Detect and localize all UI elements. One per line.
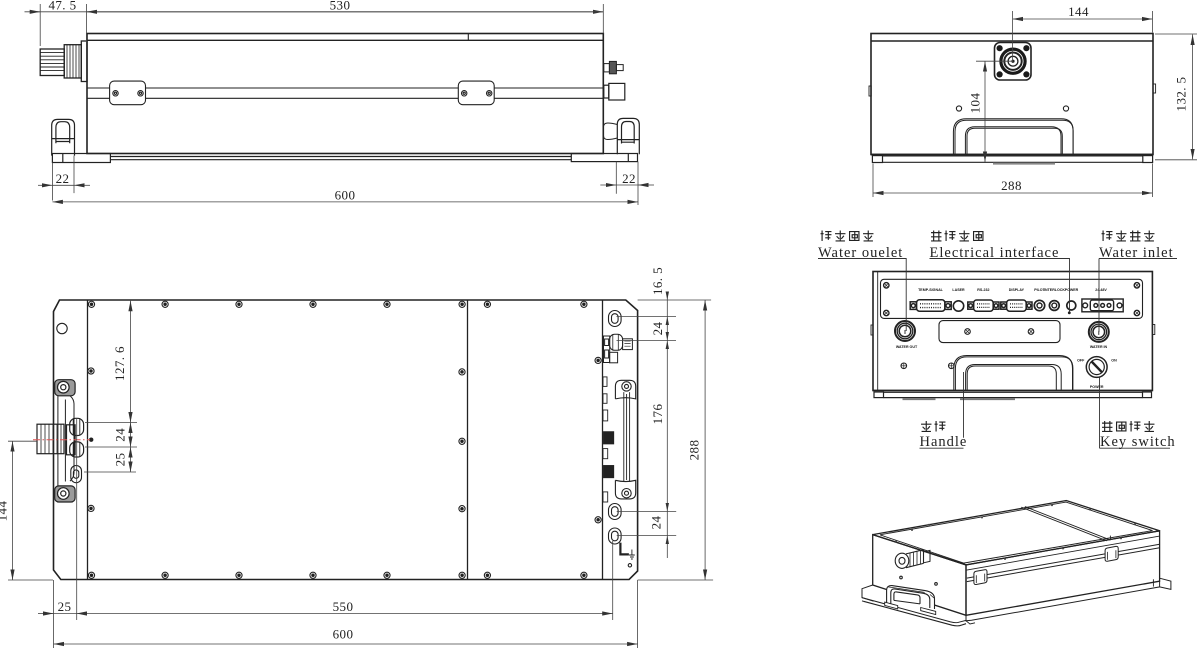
svg-text:Water inlet: Water inlet	[1099, 245, 1174, 261]
svg-text:DISPLAY: DISPLAY	[1009, 288, 1025, 292]
svg-text:24: 24	[113, 428, 128, 442]
svg-text:288: 288	[1001, 178, 1022, 193]
svg-text:Key switch: Key switch	[1100, 434, 1176, 450]
svg-text:22: 22	[622, 171, 636, 186]
svg-text:16. 5: 16. 5	[650, 267, 665, 295]
svg-text:ON: ON	[1111, 358, 1117, 362]
svg-text:24: 24	[650, 322, 665, 336]
svg-text:WATER IN: WATER IN	[1090, 345, 1108, 349]
svg-text:104: 104	[968, 93, 983, 114]
svg-text:600: 600	[335, 188, 356, 203]
svg-text:24-48V: 24-48V	[1095, 288, 1107, 292]
svg-text:22: 22	[56, 171, 70, 186]
svg-text:127. 6: 127. 6	[112, 346, 127, 381]
svg-text:POWER: POWER	[1065, 288, 1079, 292]
svg-text:Electrical interface: Electrical interface	[930, 245, 1060, 261]
svg-text:WATER OUT: WATER OUT	[896, 345, 918, 349]
svg-text:176: 176	[650, 404, 665, 425]
svg-text:550: 550	[333, 599, 354, 614]
svg-text:144: 144	[0, 501, 10, 522]
svg-text:RS-232: RS-232	[977, 288, 989, 292]
svg-text:POWER: POWER	[1090, 385, 1104, 389]
svg-text:Handle: Handle	[920, 434, 968, 450]
svg-text:144: 144	[1068, 4, 1089, 19]
svg-text:132. 5: 132. 5	[1174, 77, 1189, 112]
svg-text:47. 5: 47. 5	[49, 0, 77, 13]
svg-text:25: 25	[58, 599, 72, 614]
svg-text:25: 25	[113, 453, 128, 467]
svg-text:600: 600	[333, 627, 354, 642]
svg-text:Water ouelet: Water ouelet	[818, 245, 903, 261]
svg-text:OFF: OFF	[1077, 358, 1085, 362]
svg-text:530: 530	[330, 0, 351, 13]
svg-text:TEMP-SIGNAL: TEMP-SIGNAL	[918, 288, 944, 292]
svg-text:288: 288	[687, 440, 702, 461]
svg-text:LASER: LASER	[952, 288, 965, 292]
svg-text:INTERLOCK: INTERLOCK	[1044, 288, 1065, 292]
svg-text:24: 24	[649, 516, 664, 530]
